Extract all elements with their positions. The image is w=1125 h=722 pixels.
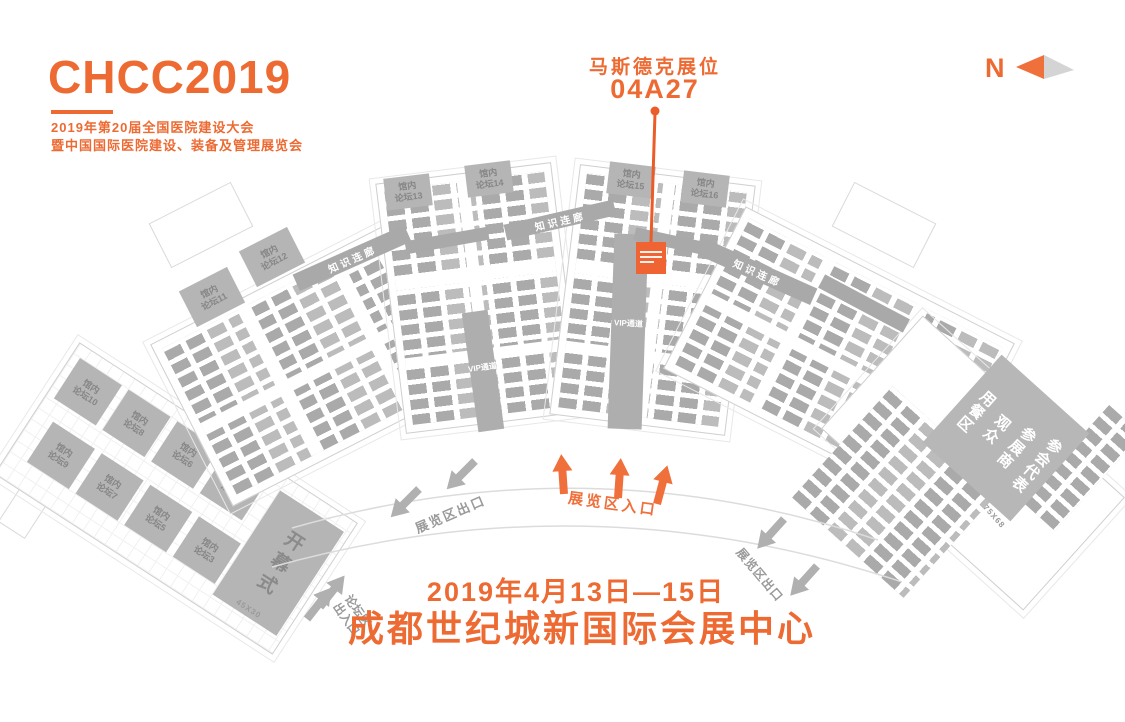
compass-needle-gray [1044,55,1074,79]
exit-arrow-right [750,512,792,555]
exit-arrow-left [440,454,482,496]
compass-needle-orange [1016,55,1044,79]
event-venue: 成都世纪城新国际会展中心 [332,600,832,652]
callout-leader-line [651,113,655,242]
exhibition-floor-plan-poster: CHCC2019 2019年第20届全国医院建设大会 暨中国国际医院建设、装备及… [0,0,1125,722]
